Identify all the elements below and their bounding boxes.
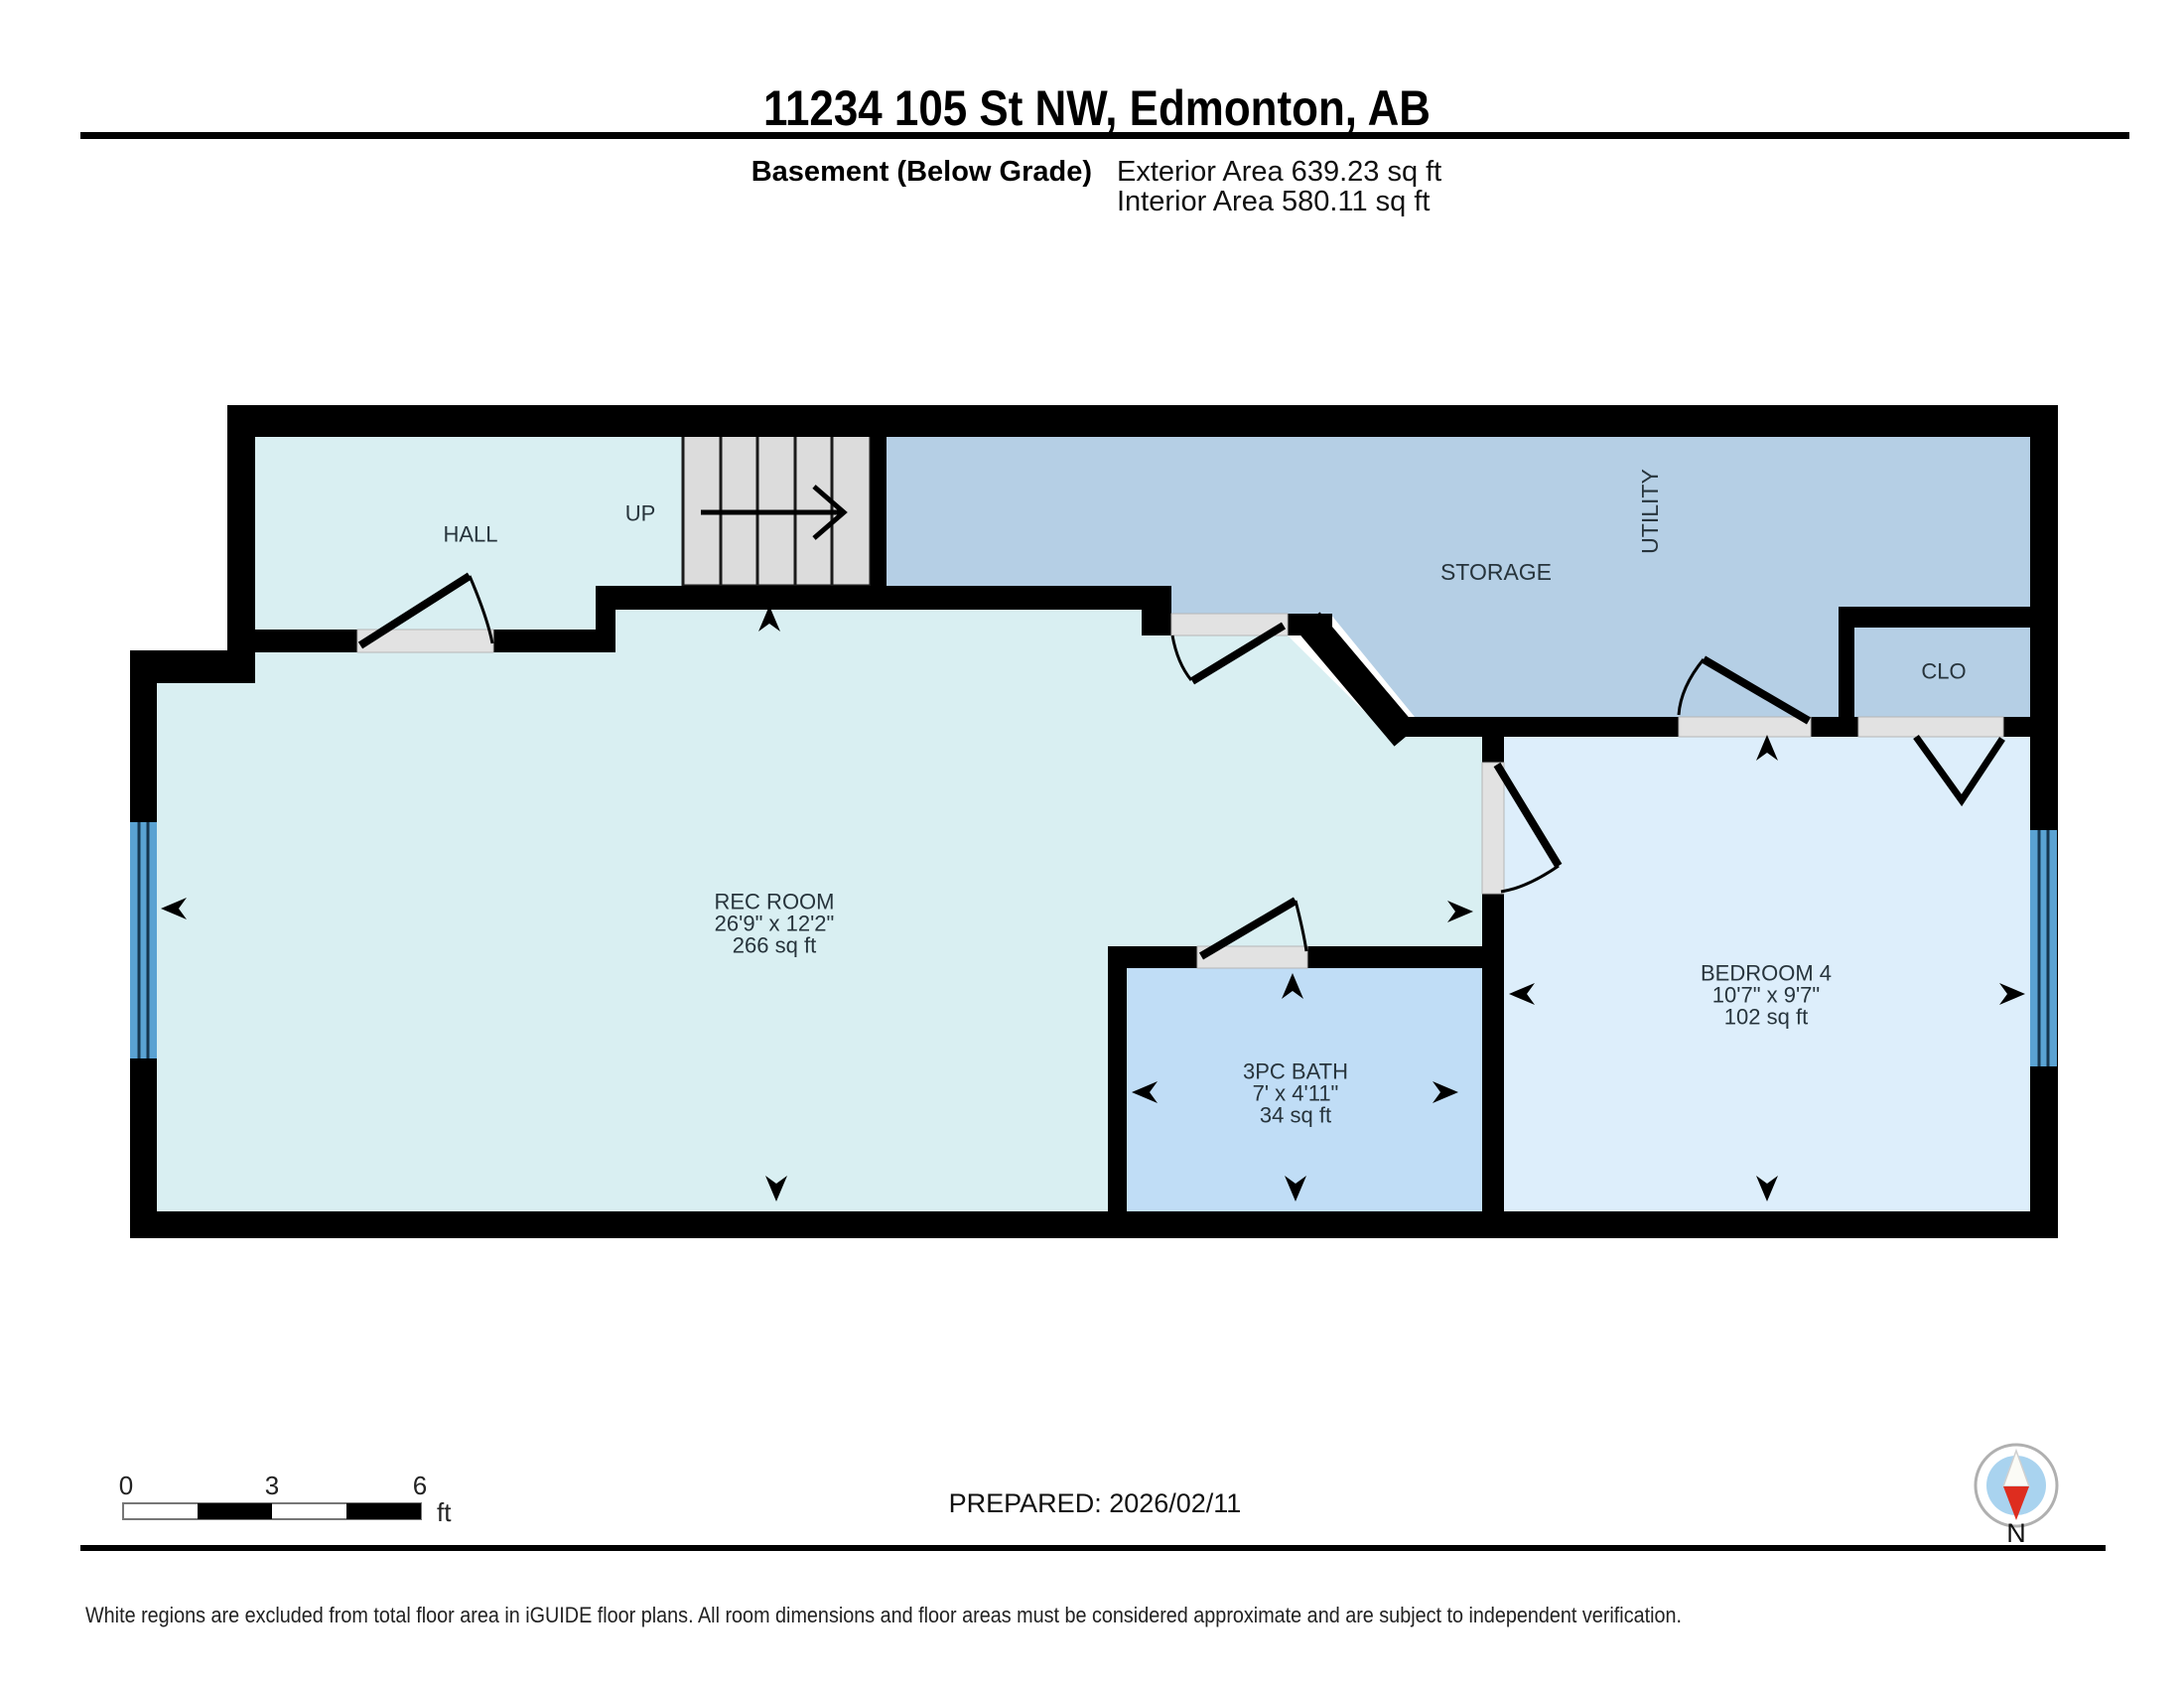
page-title: 11234 105 St NW, Edmonton, AB <box>763 80 1431 136</box>
scale-tick-6: 6 <box>413 1471 427 1500</box>
rec-room-window <box>130 818 157 1062</box>
wall-hall-bottom-a <box>227 630 357 652</box>
floor-label: Basement (Below Grade) <box>751 156 1092 188</box>
footer-divider <box>80 1545 2106 1551</box>
scale-bar-segment <box>346 1503 421 1519</box>
scale-unit-label: ft <box>437 1497 452 1527</box>
wall-closet-top <box>1839 607 2030 628</box>
wall-hall-left <box>227 405 255 652</box>
scale-bar-segment <box>198 1503 272 1519</box>
window-cap <box>130 1058 157 1062</box>
wall-bedroom-left-a <box>1482 717 1504 763</box>
bedroom-area: 102 sq ft <box>1724 1005 1808 1030</box>
scale-bar: 0 3 6 ft <box>119 1471 452 1527</box>
bath-area: 34 sq ft <box>1260 1103 1331 1128</box>
floorplan-page: 11234 105 St NW, Edmonton, AB Basement (… <box>0 0 2184 1688</box>
wall-stairs-bottom <box>596 586 1142 610</box>
bedroom-door-opening <box>1482 763 1504 894</box>
wall-utility-bottom-a <box>1392 717 1679 737</box>
wall-bedroom-left-b <box>1482 894 1504 1211</box>
interior-area-label: Interior Area 580.11 sq ft <box>1117 186 1430 217</box>
stairs-up-label: UP <box>625 501 656 526</box>
wall-right <box>2030 405 2058 1238</box>
utility-label: UTILITY <box>1637 469 1663 554</box>
rec-room-area: 266 sq ft <box>733 933 816 958</box>
wall-top <box>227 405 2058 437</box>
wall-bottom <box>130 1211 2058 1238</box>
bedroom-window <box>2030 826 2057 1070</box>
scale-tick-0: 0 <box>119 1471 133 1500</box>
closet-label: CLO <box>1921 659 1966 684</box>
floorplan-canvas: 11234 105 St NW, Edmonton, AB Basement (… <box>0 0 2184 1688</box>
scale-tick-3: 3 <box>265 1471 279 1500</box>
compass: N <box>1976 1445 2057 1548</box>
disclaimer-text: White regions are excluded from total fl… <box>85 1603 1682 1627</box>
closet-door-opening <box>1858 717 2003 737</box>
title-divider <box>80 132 2129 139</box>
storage-label: STORAGE <box>1440 559 1552 585</box>
wall-utility-bottom-c <box>2003 717 2030 737</box>
staircase <box>683 435 871 586</box>
hall-label: HALL <box>443 522 497 547</box>
wall-stairs-right <box>871 435 887 586</box>
utility-door-opening <box>1679 717 1811 737</box>
prepared-date: PREPARED: 2026/02/11 <box>949 1488 1242 1518</box>
compass-north-label: N <box>2006 1518 2026 1548</box>
window-cap <box>2030 826 2057 830</box>
wall-step-block <box>1142 586 1171 635</box>
exterior-area-label: Exterior Area 639.23 sq ft <box>1117 156 1441 188</box>
wall-bath-top-b <box>1307 946 1482 968</box>
window-cap <box>130 818 157 822</box>
wall-bath-left <box>1108 946 1127 1211</box>
window-cap <box>2030 1066 2057 1070</box>
